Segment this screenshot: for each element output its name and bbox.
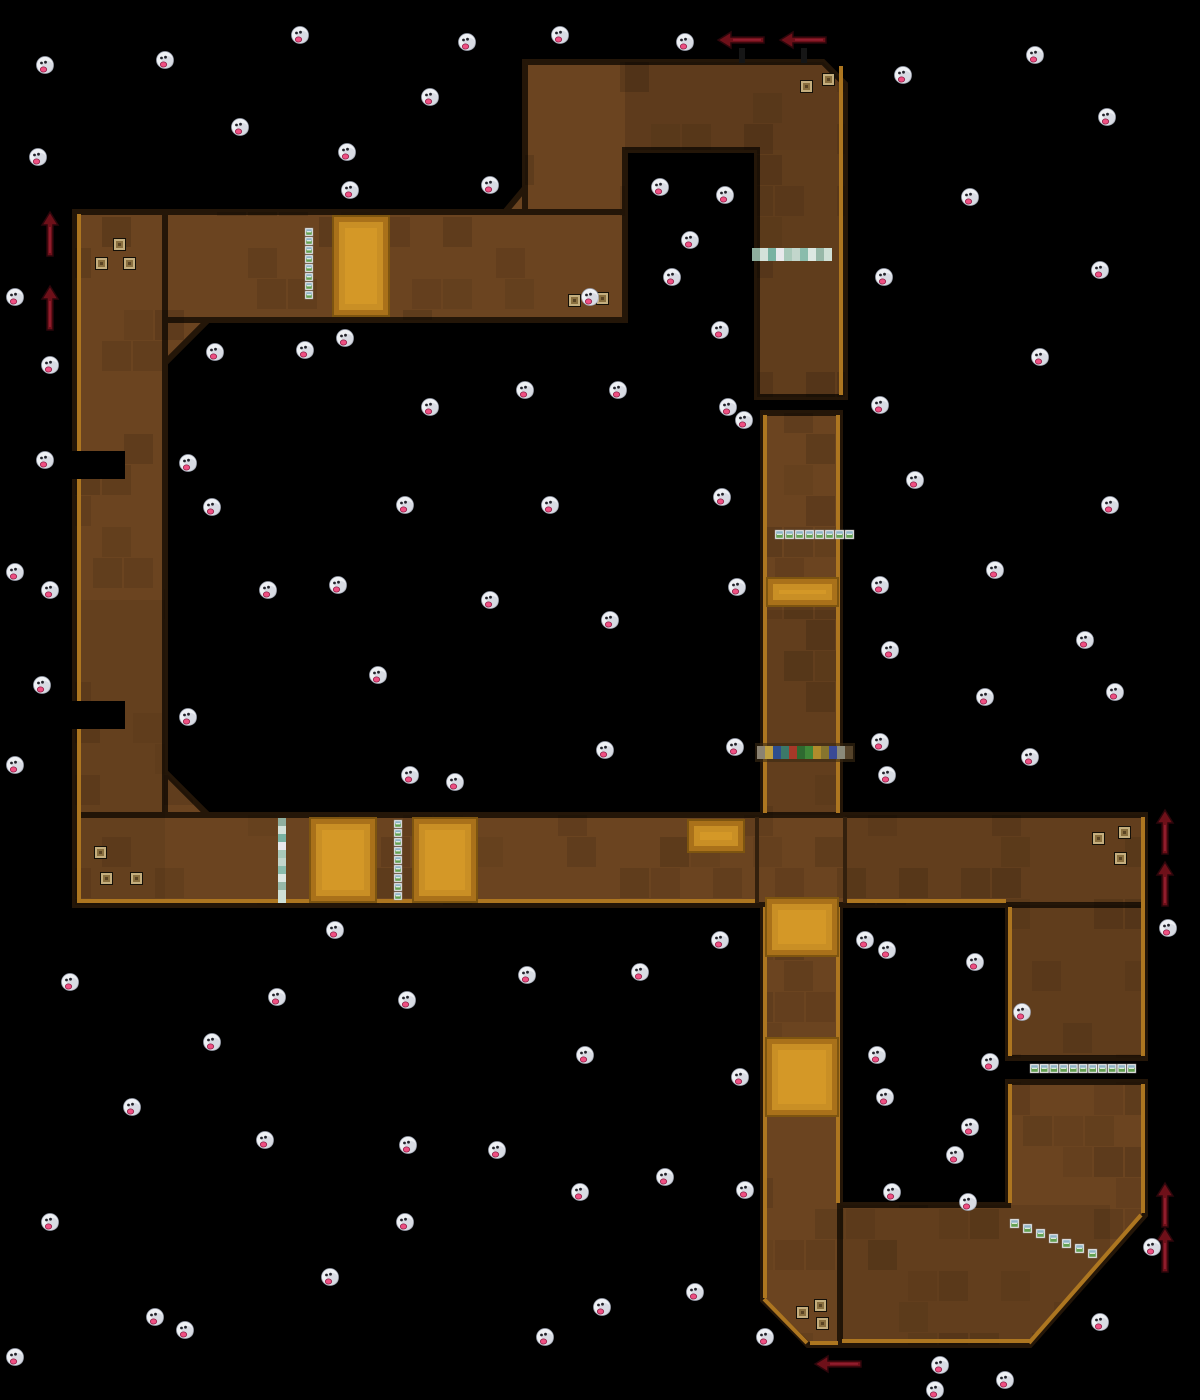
arrow-post — [801, 48, 807, 63]
start-grid-tile — [813, 746, 821, 759]
boo-eye — [334, 926, 337, 929]
boo-eye — [183, 460, 186, 463]
boo-eye — [184, 1326, 187, 1329]
boo-eye — [239, 123, 242, 126]
boo-ghost — [292, 27, 309, 44]
boo-eye — [891, 1188, 894, 1191]
boo-eye — [10, 294, 13, 297]
boo-tongue — [723, 409, 729, 414]
boo-eye — [406, 996, 409, 999]
boo-eye — [969, 193, 972, 196]
boo-eye — [732, 584, 735, 587]
item-box — [305, 255, 313, 263]
boo-eye — [466, 38, 469, 41]
boo-tongue — [45, 1224, 51, 1229]
boo-eye — [325, 1274, 328, 1277]
boo-ghost — [519, 967, 536, 984]
boo-eye — [655, 184, 658, 187]
boo-eye — [875, 739, 878, 742]
boo-eye — [180, 1327, 183, 1330]
boo-eye — [485, 597, 488, 600]
boo-eye — [882, 947, 885, 950]
item-box — [1062, 1239, 1071, 1248]
boo-eye — [967, 1198, 970, 1201]
item-box — [305, 237, 313, 245]
start-grid-tile — [829, 746, 837, 759]
boo-eye — [260, 1137, 263, 1140]
boo-eye — [409, 771, 412, 774]
boo-eye — [346, 148, 349, 151]
jump-strip-tile — [792, 248, 800, 261]
boo-eye — [680, 39, 683, 42]
start-grid-tile — [845, 746, 853, 759]
boo-ghost — [397, 497, 414, 514]
boo-eye — [882, 772, 885, 775]
boo-eye — [1147, 1244, 1150, 1247]
boo-eye — [740, 1187, 743, 1190]
boost-pad — [766, 898, 838, 956]
boo-eye — [980, 694, 983, 697]
item-box — [394, 874, 402, 882]
boo-eye — [876, 1051, 879, 1054]
boo-tongue — [605, 622, 611, 627]
boo-ghost — [582, 289, 599, 306]
boo-ghost — [577, 1047, 594, 1064]
boo-tongue — [300, 352, 306, 357]
boo-eye — [639, 968, 642, 971]
boo-tongue — [739, 422, 745, 427]
boo-eye — [337, 581, 340, 584]
boo-tongue — [1102, 119, 1108, 124]
boo-ghost — [717, 187, 734, 204]
boo-ghost — [879, 942, 896, 959]
item-box — [1069, 1064, 1078, 1073]
boo-ghost — [1014, 1004, 1031, 1021]
boo-tongue — [400, 507, 406, 512]
boo-eye — [930, 1387, 933, 1390]
boo-eye — [720, 192, 723, 195]
boo-ghost — [342, 182, 359, 199]
boo-eye — [1030, 52, 1033, 55]
boo-eye — [214, 348, 217, 351]
boost-pad — [333, 216, 389, 316]
boo-ghost — [932, 1357, 949, 1374]
boo-eye — [160, 57, 163, 60]
boo-eye — [150, 1314, 153, 1317]
boo-ghost — [1107, 684, 1124, 701]
boo-eye — [1080, 637, 1083, 640]
item-box — [1117, 1064, 1126, 1073]
boo-tongue — [333, 587, 339, 592]
jump-strip-tile — [752, 248, 760, 261]
boo-ghost — [597, 742, 614, 759]
boo-eye — [589, 293, 592, 296]
boo-ghost — [572, 1184, 589, 1201]
boo-ghost — [327, 922, 344, 939]
boo-eye — [14, 1353, 17, 1356]
boo-eye — [575, 1189, 578, 1192]
boo-tongue — [585, 299, 591, 304]
boo-tongue — [183, 719, 189, 724]
shade-patch — [625, 62, 843, 150]
boo-ghost — [257, 1132, 274, 1149]
boo-eye — [10, 569, 13, 572]
boo-eye — [400, 502, 403, 505]
boo-eye — [584, 1051, 587, 1054]
boo-eye — [886, 771, 889, 774]
boo-ghost — [610, 382, 627, 399]
boost-pad — [310, 818, 376, 902]
boo-eye — [1102, 114, 1105, 117]
boo-eye — [404, 501, 407, 504]
boo-eye — [65, 979, 68, 982]
boo-eye — [898, 72, 901, 75]
boo-tongue — [985, 1064, 991, 1069]
boo-tongue — [1110, 694, 1116, 699]
boo-eye — [524, 386, 527, 389]
boo-eye — [721, 493, 724, 496]
boo-eye — [329, 1273, 332, 1276]
boo-eye — [485, 182, 488, 185]
boo-ghost — [7, 564, 24, 581]
boo-tongue — [575, 1194, 581, 1199]
block-obstacle — [94, 846, 107, 859]
shade-patch — [845, 815, 1143, 903]
boo-eye — [760, 1334, 763, 1337]
boo-eye — [1109, 501, 1112, 504]
boo-tongue — [1095, 272, 1101, 277]
boo-ghost — [337, 330, 354, 347]
boo-ghost — [62, 974, 79, 991]
boost-pad — [766, 1038, 838, 1116]
boo-tongue — [685, 242, 691, 247]
boo-tongue — [10, 767, 16, 772]
boo-ghost — [1144, 1239, 1161, 1256]
boo-eye — [1151, 1243, 1154, 1246]
item-box — [1127, 1064, 1136, 1073]
boo-tongue — [715, 942, 721, 947]
boo-eye — [40, 457, 43, 460]
boo-ghost — [1092, 262, 1109, 279]
item-box — [775, 530, 784, 539]
boo-ghost — [872, 734, 889, 751]
boo-ghost — [982, 1054, 999, 1071]
boo-ghost — [727, 739, 744, 756]
item-box — [1036, 1229, 1045, 1238]
boo-ghost — [594, 1299, 611, 1316]
boo-tongue — [272, 999, 278, 1004]
boo-eye — [887, 1189, 890, 1192]
boo-ghost — [872, 397, 889, 414]
jump-strip-tile — [816, 248, 824, 261]
boo-eye — [37, 682, 40, 685]
shade-patch — [757, 150, 843, 397]
boo-ghost — [260, 582, 277, 599]
boo-eye — [187, 459, 190, 462]
boo-eye — [45, 1219, 48, 1222]
boo-tongue — [950, 1157, 956, 1162]
boo-tongue — [717, 499, 723, 504]
boo-eye — [489, 596, 492, 599]
boo-ghost — [712, 322, 729, 339]
boo-eye — [734, 743, 737, 746]
boo-eye — [671, 273, 674, 276]
boo-tongue — [485, 602, 491, 607]
boo-ghost — [1099, 109, 1116, 126]
block-obstacle — [568, 294, 581, 307]
boo-eye — [730, 744, 733, 747]
boo-tongue — [37, 687, 43, 692]
boo-tongue — [887, 1194, 893, 1199]
item-box — [825, 530, 834, 539]
boo-ghost — [7, 289, 24, 306]
start-grid-tile — [773, 746, 781, 759]
item-box — [305, 228, 313, 236]
boo-eye — [33, 154, 36, 157]
boo-ghost — [712, 932, 729, 949]
boo-eye — [333, 582, 336, 585]
boo-eye — [743, 416, 746, 419]
boo-tongue — [235, 129, 241, 134]
boo-ghost — [447, 774, 464, 791]
item-box — [1075, 1244, 1084, 1253]
boo-ghost — [1092, 1314, 1109, 1331]
boo-eye — [154, 1313, 157, 1316]
boo-ghost — [884, 1184, 901, 1201]
boo-eye — [659, 183, 662, 186]
start-grid-tile — [757, 746, 765, 759]
boo-ghost — [757, 1329, 774, 1346]
boo-eye — [994, 566, 997, 569]
boo-eye — [879, 401, 882, 404]
boo-tongue — [545, 507, 551, 512]
item-box — [394, 883, 402, 891]
jump-strip-tile — [768, 248, 776, 261]
boo-eye — [373, 672, 376, 675]
boo-eye — [667, 274, 670, 277]
boo-eye — [1163, 925, 1166, 928]
boo-eye — [267, 586, 270, 589]
boo-ghost — [542, 497, 559, 514]
boo-tongue — [1000, 1382, 1006, 1387]
boo-tongue — [580, 1057, 586, 1062]
boo-eye — [492, 1147, 495, 1150]
boo-eye — [1106, 113, 1109, 116]
boo-eye — [299, 31, 302, 34]
item-box — [1023, 1224, 1032, 1233]
boo-tongue — [935, 1367, 941, 1372]
boo-tongue — [1017, 1014, 1023, 1019]
boo-eye — [295, 32, 298, 35]
boo-eye — [131, 1103, 134, 1106]
boo-eye — [935, 1362, 938, 1365]
boo-ghost — [297, 342, 314, 359]
boo-tongue — [732, 589, 738, 594]
boo-eye — [860, 937, 863, 940]
boo-tongue — [1080, 642, 1086, 647]
boo-ghost — [180, 455, 197, 472]
boo-ghost — [459, 34, 476, 51]
jump-strip-tile — [784, 248, 792, 261]
boo-tongue — [880, 1099, 886, 1104]
boo-tongue — [965, 1129, 971, 1134]
boo-ghost — [879, 767, 896, 784]
boo-ghost — [1160, 920, 1177, 937]
boo-eye — [1099, 266, 1102, 269]
boo-ghost — [947, 1147, 964, 1164]
boo-eye — [264, 1136, 267, 1139]
boost-pad — [413, 818, 477, 902]
boo-tongue — [425, 99, 431, 104]
boo-eye — [489, 181, 492, 184]
boo-eye — [211, 1038, 214, 1041]
item-box — [835, 530, 844, 539]
boo-eye — [974, 958, 977, 961]
boo-eye — [187, 713, 190, 716]
boo-eye — [886, 946, 889, 949]
boo-tongue — [963, 1204, 969, 1209]
item-box — [1010, 1219, 1019, 1228]
boo-tongue — [462, 44, 468, 49]
boo-eye — [605, 617, 608, 620]
boo-tongue — [555, 37, 561, 42]
boo-ghost — [42, 357, 59, 374]
boo-eye — [685, 237, 688, 240]
boo-ghost — [657, 1169, 674, 1186]
boo-eye — [1034, 51, 1037, 54]
block-obstacle — [1114, 852, 1127, 865]
boo-eye — [207, 1039, 210, 1042]
boo-eye — [1114, 688, 1117, 691]
boo-tongue — [403, 1147, 409, 1152]
boo-eye — [875, 402, 878, 405]
item-box — [394, 892, 402, 900]
boo-ghost — [664, 269, 681, 286]
boo-tongue — [425, 409, 431, 414]
boo-ghost — [877, 1089, 894, 1106]
boo-eye — [14, 568, 17, 571]
start-grid-tile — [837, 746, 845, 759]
boo-tongue — [45, 367, 51, 372]
boo-eye — [211, 503, 214, 506]
boo-ghost — [322, 1269, 339, 1286]
boo-eye — [604, 746, 607, 749]
start-grid-tile — [765, 746, 773, 759]
boo-eye — [330, 927, 333, 930]
boo-tongue — [65, 984, 71, 989]
boo-ghost — [1027, 47, 1044, 64]
item-box — [305, 246, 313, 254]
jump-strip — [278, 818, 286, 903]
boo-ghost — [517, 382, 534, 399]
boo-eye — [1039, 353, 1042, 356]
boo-ghost — [232, 119, 249, 136]
boo-eye — [744, 1186, 747, 1189]
boo-eye — [984, 693, 987, 696]
boo-eye — [276, 993, 279, 996]
boo-tongue — [1147, 1249, 1153, 1254]
boo-eye — [559, 31, 562, 34]
block-obstacle — [800, 80, 813, 93]
boo-ghost — [552, 27, 569, 44]
boo-ghost — [652, 179, 669, 196]
boo-tongue — [879, 279, 885, 284]
boo-eye — [970, 959, 973, 962]
boo-eye — [407, 1141, 410, 1144]
boo-ghost — [147, 1309, 164, 1326]
boo-eye — [544, 1333, 547, 1336]
boo-eye — [1105, 502, 1108, 505]
boo-tongue — [345, 192, 351, 197]
boo-eye — [715, 327, 718, 330]
boo-tongue — [613, 392, 619, 397]
boo-eye — [883, 273, 886, 276]
boo-eye — [1021, 1008, 1024, 1011]
boo-tongue — [1035, 359, 1041, 364]
boo-eye — [429, 93, 432, 96]
boo-tongue — [660, 1179, 666, 1184]
boo-tongue — [885, 652, 891, 657]
boo-ghost — [180, 709, 197, 726]
boo-tongue — [45, 592, 51, 597]
boo-tongue — [180, 1332, 186, 1337]
boo-tongue — [860, 942, 866, 947]
boo-eye — [990, 567, 993, 570]
block-obstacle — [1092, 832, 1105, 845]
boo-eye — [540, 1334, 543, 1337]
boo-eye — [580, 1052, 583, 1055]
boo-eye — [545, 502, 548, 505]
boo-ghost — [7, 1349, 24, 1366]
block-obstacle — [113, 238, 126, 251]
boo-eye — [579, 1188, 582, 1191]
boo-eye — [764, 1333, 767, 1336]
boo-ghost — [422, 89, 439, 106]
boo-ghost — [42, 1214, 59, 1231]
item-box — [305, 264, 313, 272]
boo-eye — [660, 1174, 663, 1177]
boo-tongue — [690, 1294, 696, 1299]
boo-eye — [1095, 267, 1098, 270]
boo-ghost — [7, 757, 24, 774]
boo-eye — [934, 1386, 937, 1389]
boo-eye — [719, 936, 722, 939]
boo-tongue — [373, 677, 379, 682]
boo-tongue — [635, 974, 641, 979]
boo-eye — [207, 504, 210, 507]
boo-tongue — [735, 1079, 741, 1084]
item-box — [1030, 1064, 1039, 1073]
item-box — [305, 282, 313, 290]
boo-ghost — [482, 592, 499, 609]
jump-strip — [752, 248, 832, 261]
item-box — [394, 829, 402, 837]
item-box — [1108, 1064, 1117, 1073]
item-box — [805, 530, 814, 539]
boo-eye — [45, 362, 48, 365]
boo-eye — [885, 647, 888, 650]
boo-tongue — [160, 62, 166, 67]
boo-eye — [40, 62, 43, 65]
boo-tongue — [33, 159, 39, 164]
boo-eye — [875, 582, 878, 585]
boo-eye — [723, 404, 726, 407]
boo-ghost — [872, 577, 889, 594]
boo-eye — [635, 969, 638, 972]
boo-eye — [664, 1173, 667, 1176]
boo-eye — [1017, 1009, 1020, 1012]
start-grid-tile — [781, 746, 789, 759]
